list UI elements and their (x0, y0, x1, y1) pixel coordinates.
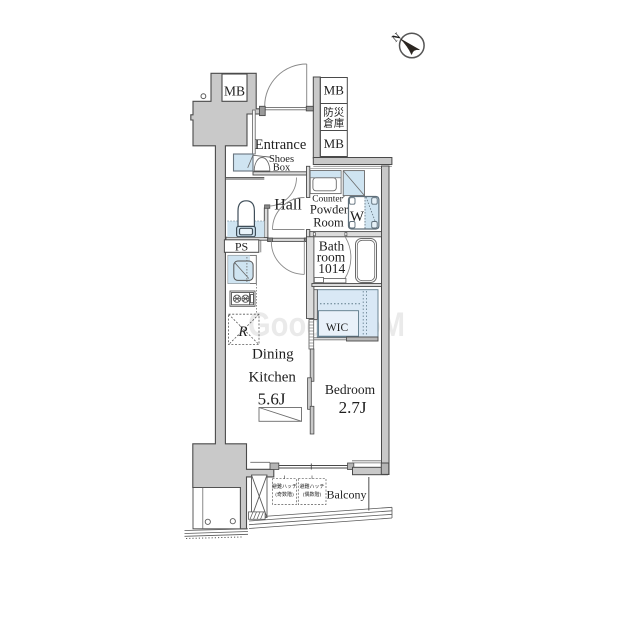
svg-text:倉庫: 倉庫 (323, 117, 344, 130)
svg-text:MB: MB (224, 84, 245, 99)
svg-text:Kitchen: Kitchen (248, 370, 296, 386)
svg-text:MB: MB (324, 136, 345, 151)
svg-text:W: W (350, 209, 365, 225)
svg-text:(偶数階): (偶数階) (303, 491, 322, 498)
svg-text:5.6J: 5.6J (258, 390, 286, 409)
svg-text:避難ハッチ: 避難ハッチ (272, 483, 297, 490)
svg-text:Balcony: Balcony (327, 488, 367, 502)
svg-text:避難ハッチ: 避難ハッチ (299, 483, 324, 490)
svg-text:Powder: Powder (310, 203, 349, 217)
svg-text:Entrance: Entrance (255, 137, 307, 153)
svg-text:Bedroom: Bedroom (325, 382, 376, 397)
svg-text:(奇数階): (奇数階) (275, 491, 294, 498)
svg-text:R: R (237, 324, 247, 340)
svg-text:1014: 1014 (318, 261, 345, 276)
svg-text:MB: MB (324, 83, 345, 98)
svg-text:Room: Room (313, 216, 344, 230)
svg-text:2.7J: 2.7J (339, 398, 367, 417)
svg-text:PS: PS (235, 240, 248, 254)
svg-text:Dining: Dining (252, 347, 294, 363)
svg-text:防災: 防災 (323, 106, 344, 119)
svg-text:WIC: WIC (326, 322, 349, 334)
